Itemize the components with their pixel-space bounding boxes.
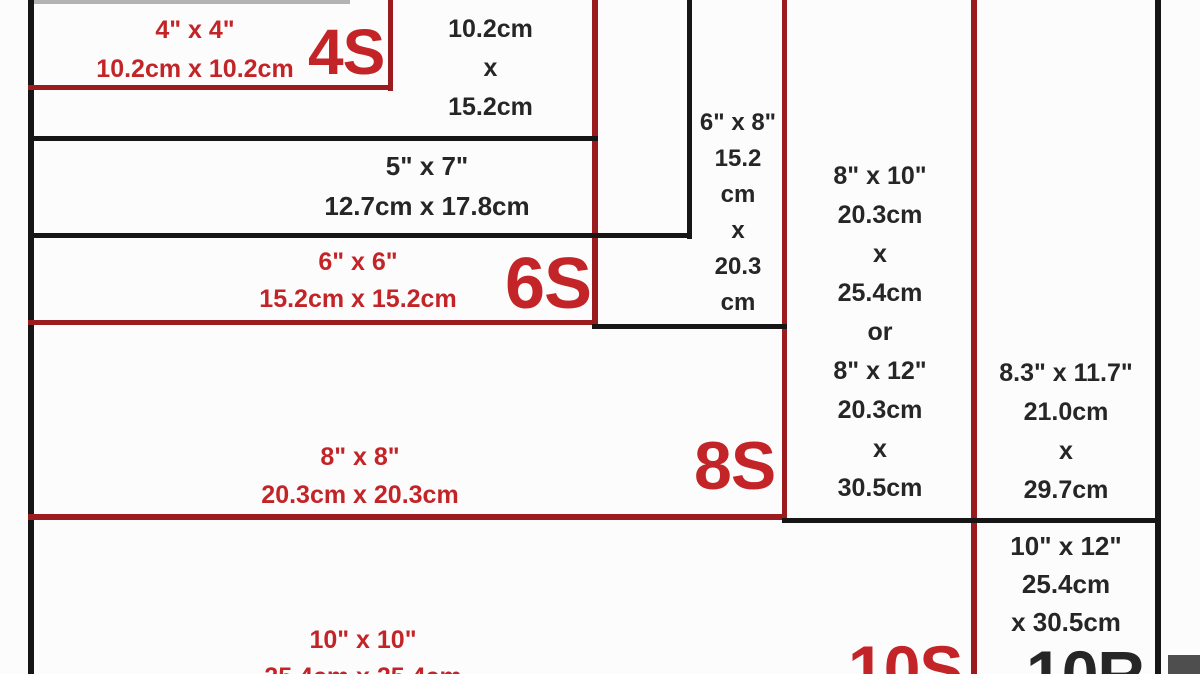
size-cm-2: 20.3cm x 30.5cm	[795, 391, 965, 508]
size-cm: 25.4cm x 25.4cm	[210, 659, 516, 674]
border-left-edge	[28, 0, 34, 674]
size-label-6x6: 6" x 6" 15.2cm x 15.2cm	[208, 244, 508, 318]
size-inches: 10" x 12"	[985, 527, 1147, 565]
size-label-6x8: 6" x 8" 15.2 cm x 20.3 cm	[692, 105, 784, 321]
size-inches: 6" x 8"	[692, 105, 784, 141]
size-code-6S: 6S	[505, 248, 591, 320]
size-inches: 8.3" x 11.7"	[980, 354, 1152, 393]
size-inches: 8" x 8"	[210, 438, 510, 476]
border-10r-right	[1155, 0, 1161, 674]
size-code-10R: 10R	[1026, 641, 1144, 674]
size-label-a4: 8.3" x 11.7" 21.0cm x 29.7cm	[980, 354, 1152, 510]
border-10s-right	[971, 0, 977, 674]
size-cm: 20.3cm x 20.3cm	[210, 476, 510, 514]
size-cm: 15.2cm x 15.2cm	[208, 281, 508, 318]
size-cm: 25.4cm x 30.5cm	[985, 565, 1147, 641]
size-inches: 10" x 10"	[210, 622, 516, 659]
size-cm: 20.3cm x 25.4cm	[795, 196, 965, 313]
size-label-10x10: 10" x 10" 25.4cm x 25.4cm	[210, 622, 516, 674]
border-6s-right	[592, 0, 598, 327]
cropped-corner-artifact	[1168, 655, 1200, 674]
border-6x8-bottom	[592, 324, 787, 329]
size-inches: 5" x 7"	[277, 146, 577, 186]
size-label-10x12: 10" x 12" 25.4cm x 30.5cm	[985, 527, 1147, 641]
print-size-diagram: 4" x 4" 10.2cm x 10.2cm 4" x 6" 10.2cm x…	[0, 0, 1200, 674]
size-or: or	[795, 313, 965, 352]
size-code-8S: 8S	[694, 432, 775, 500]
border-4x6-bottom	[28, 233, 692, 238]
size-label-5x7: 5" x 7" 12.7cm x 17.8cm	[277, 146, 577, 226]
size-code-4S: 4S	[308, 20, 384, 84]
border-8s-bottom	[28, 514, 787, 520]
size-inches: 4" x 6"	[408, 0, 573, 10]
size-label-4x6: 4" x 6" 10.2cm x 15.2cm	[408, 0, 573, 127]
size-inches: 8" x 10"	[795, 157, 965, 196]
size-inches-2: 8" x 12"	[795, 352, 965, 391]
cropped-top-artifact	[28, 0, 350, 4]
size-cm: 12.7cm x 17.8cm	[277, 186, 577, 226]
size-cm: 15.2 cm x 20.3 cm	[692, 141, 784, 321]
size-label-8x10-or-8x12: 8" x 10" 20.3cm x 25.4cm or 8" x 12" 20.…	[795, 157, 965, 508]
size-label-8x8: 8" x 8" 20.3cm x 20.3cm	[210, 438, 510, 514]
border-5x7-top	[28, 136, 598, 141]
size-cm: 10.2cm x 15.2cm	[408, 10, 573, 127]
border-a4-bottom	[782, 518, 1161, 523]
size-inches: 6" x 6"	[208, 244, 508, 281]
size-cm: 21.0cm x 29.7cm	[980, 393, 1152, 510]
size-code-10S: 10S	[848, 636, 962, 674]
border-4s-right	[388, 0, 393, 91]
